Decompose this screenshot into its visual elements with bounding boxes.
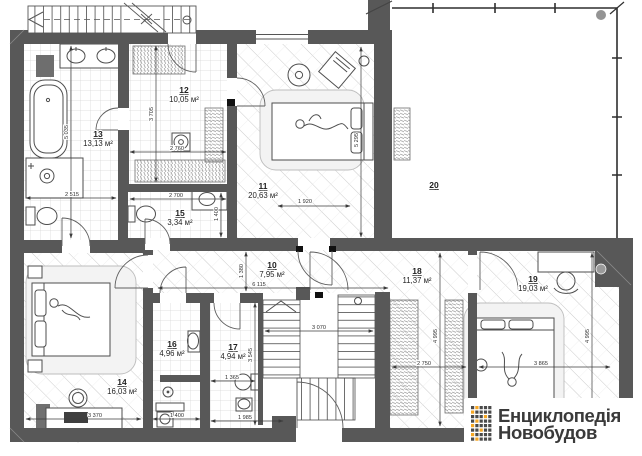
room-area-label: 13,13 м² xyxy=(83,139,113,148)
room-number-label: 18 xyxy=(412,266,422,276)
dimension-label: 1 400 xyxy=(170,413,184,419)
wardrobe-icon xyxy=(205,108,223,162)
pillow-icon xyxy=(35,290,46,316)
stove-icon xyxy=(64,412,88,423)
room-number-label: 15 xyxy=(175,208,185,218)
nightstand-icon xyxy=(28,266,42,278)
room-number-label: 20 xyxy=(429,180,439,190)
room-number-label: 16 xyxy=(167,339,177,349)
stairwell xyxy=(263,293,375,432)
floor-drain-dot xyxy=(167,391,170,394)
stairs-icon xyxy=(338,295,375,378)
dimension-label: 6 115 xyxy=(252,282,266,288)
bench-icon xyxy=(156,403,184,411)
cabinet-icon xyxy=(36,55,54,77)
room-area-label: 4,96 м² xyxy=(159,349,185,358)
vanity-counter xyxy=(60,44,122,68)
toilet-icon xyxy=(137,206,156,222)
dimension-label: 2 700 xyxy=(169,193,183,199)
dimension-label: 1 380 xyxy=(239,264,245,278)
pillow-icon xyxy=(481,320,505,329)
room-number-label: 10 xyxy=(267,260,277,270)
room-area-label: 3,34 м² xyxy=(167,218,193,227)
dimension-label: 3 865 xyxy=(534,361,548,367)
dimension-label: 5 035 xyxy=(64,125,70,139)
dimension-label: 3 370 xyxy=(88,413,102,419)
toilet-tank xyxy=(128,206,135,222)
watermark-line2: Новобудов xyxy=(498,424,621,441)
pillow-icon xyxy=(509,320,533,329)
watermark-text: Енциклопедія Новобудов xyxy=(498,407,621,441)
floor-terrace-20 xyxy=(392,8,617,238)
dimension-label: 2 515 xyxy=(65,192,79,198)
wardrobe-icon xyxy=(390,300,418,415)
dimension-label: 3 545 xyxy=(248,348,254,362)
dimension-label: 2 750 xyxy=(417,361,431,367)
window xyxy=(256,31,308,43)
room-number-label: 17 xyxy=(228,342,238,352)
room-area-label: 16,03 м² xyxy=(107,387,137,396)
watermark-logo: Енциклопедія Новобудов xyxy=(464,398,642,450)
radiator-icon xyxy=(394,108,410,160)
stairs-icon xyxy=(263,300,300,378)
room-number-label: 19 xyxy=(528,274,538,284)
desk-icon xyxy=(538,252,594,272)
dimension-label: 1 920 xyxy=(298,199,312,205)
room-area-label: 11,37 м² xyxy=(402,276,431,285)
wardrobe-icon xyxy=(135,160,225,182)
dimension-label: 3 705 xyxy=(149,107,155,121)
exterior-stairs xyxy=(28,1,392,33)
pillow-icon xyxy=(351,108,362,129)
column-dot xyxy=(596,264,606,274)
room-area-label: 20,63 м² xyxy=(248,191,278,200)
dimension-label: 1 400 xyxy=(214,207,220,221)
toilet-icon xyxy=(37,208,57,225)
dimension-label: 3 070 xyxy=(312,325,326,331)
dimension-label: 4 995 xyxy=(585,329,591,343)
dimension-label: 1 365 xyxy=(225,375,239,381)
dimension-label: 4 995 xyxy=(433,329,439,343)
room-area-label: 10,05 м² xyxy=(169,95,199,104)
room-number-label: 12 xyxy=(179,85,189,95)
toilet-tank xyxy=(26,207,35,225)
room-number-label: 11 xyxy=(259,181,268,191)
dimension-label: 1 985 xyxy=(238,415,252,421)
nightstand-icon xyxy=(28,360,42,372)
room-area-label: 19,03 м² xyxy=(518,284,548,293)
wardrobe-icon xyxy=(133,46,185,74)
stairs-icon xyxy=(297,378,355,420)
wardrobe-icon xyxy=(445,300,463,413)
dimension-label: 2 760 xyxy=(170,146,184,152)
room-number-label: 14 xyxy=(117,377,127,387)
logo-grid-icon xyxy=(471,406,492,442)
room-area-label: 7,95 м² xyxy=(259,270,285,279)
column-dot xyxy=(596,10,606,20)
floor-plan: 5 035 2 515 3 705 2 760 2 700 1 400 5 29… xyxy=(0,0,642,456)
dimension-label: 5 295 xyxy=(354,133,360,147)
room-area-label: 4,94 м² xyxy=(220,352,246,361)
room-number-label: 13 xyxy=(93,129,103,139)
floor-plan-canvas: 5 035 2 515 3 705 2 760 2 700 1 400 5 29… xyxy=(0,0,642,456)
pillow-icon xyxy=(35,321,46,347)
